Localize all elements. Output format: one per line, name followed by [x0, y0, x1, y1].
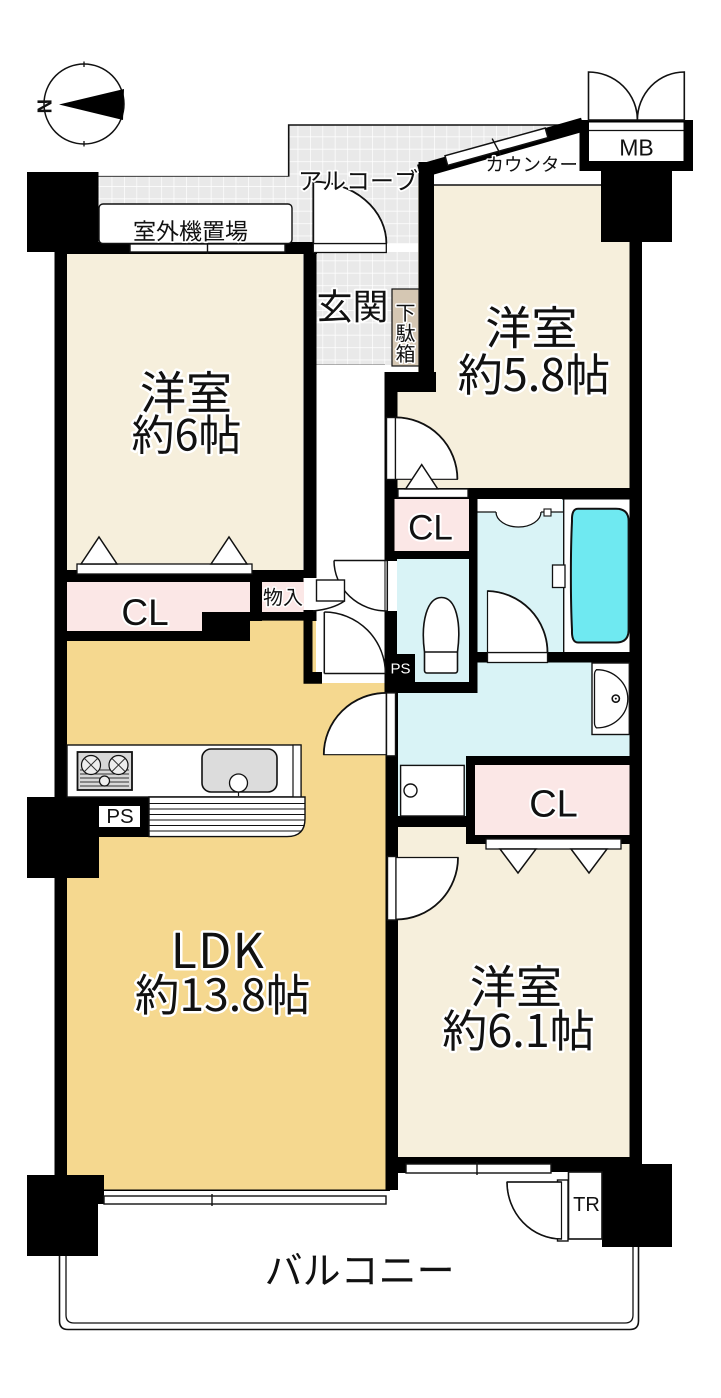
svg-text:PS: PS — [106, 805, 133, 828]
svg-text:PS: PS — [390, 661, 410, 678]
svg-text:N: N — [35, 99, 57, 113]
svg-text:CL: CL — [408, 509, 453, 548]
svg-text:CL: CL — [529, 784, 578, 826]
svg-text:TR: TR — [573, 1194, 600, 1216]
svg-text:MB: MB — [619, 135, 654, 161]
svg-text:CL: CL — [121, 592, 168, 633]
